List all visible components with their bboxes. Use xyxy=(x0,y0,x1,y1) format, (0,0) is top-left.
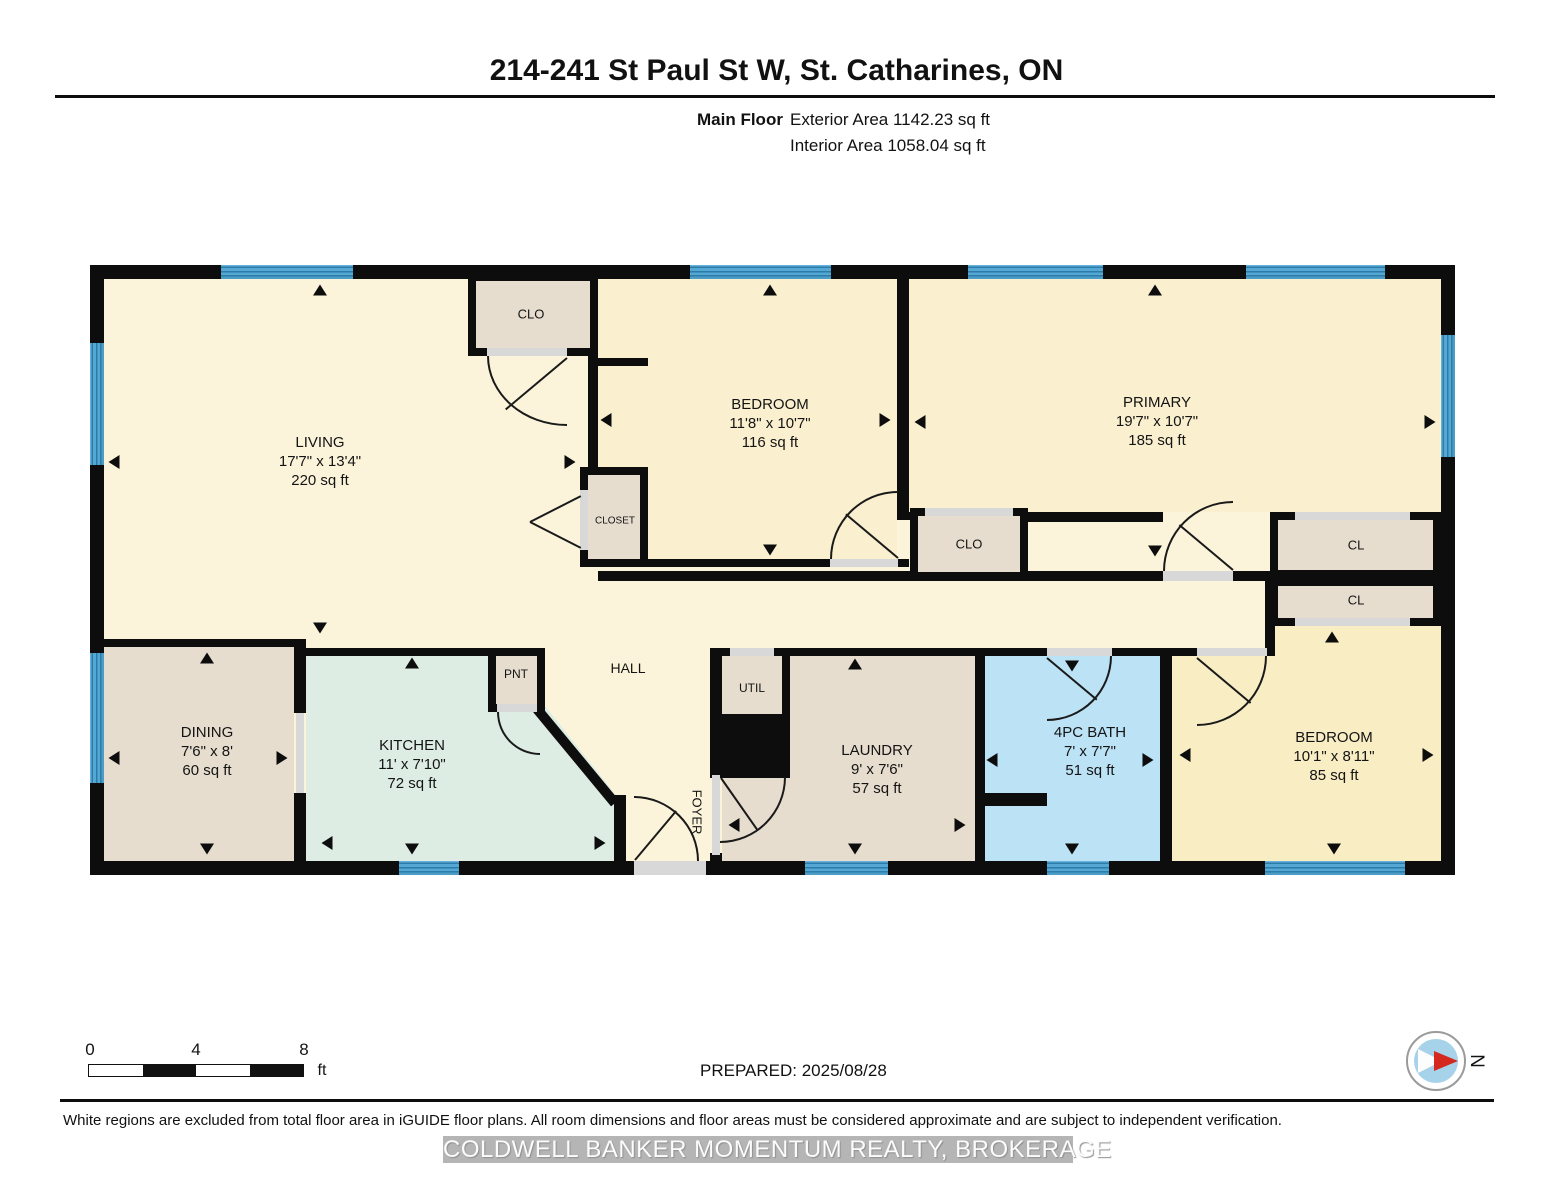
compass-north-label: N xyxy=(1465,1054,1487,1068)
entry-door-threshold xyxy=(634,861,706,875)
void-block xyxy=(714,718,790,778)
window xyxy=(690,265,831,279)
scale-unit: ft xyxy=(318,1062,327,1080)
room-label-primary: PRIMARY 19'7" x 10'7" 185 sq ft xyxy=(1116,393,1198,451)
door-threshold xyxy=(1197,648,1267,656)
scale-bar xyxy=(88,1064,304,1077)
measure-arrow-left xyxy=(322,836,333,850)
door-threshold xyxy=(1047,648,1112,656)
room-label-bedroom2: BEDROOM 10'1" x 8'11" 85 sq ft xyxy=(1293,728,1374,786)
scale-tick-4: 4 xyxy=(191,1040,200,1060)
wall xyxy=(614,795,626,861)
measure-arrow-up xyxy=(405,658,419,669)
measure-arrow-down xyxy=(1148,546,1162,557)
window xyxy=(1265,861,1405,875)
label-pnt: PNT xyxy=(504,667,528,681)
door-threshold xyxy=(830,559,898,567)
floor-plan-page: 214-241 St Paul St W, St. Catharines, ON… xyxy=(0,0,1553,1200)
measure-arrow-down xyxy=(405,844,419,855)
room-label-bedroom1: BEDROOM 11'8" x 10'7" 116 sq ft xyxy=(729,395,810,453)
room-label-bath: 4PC BATH 7' x 7'7" 51 sq ft xyxy=(1054,723,1126,781)
window xyxy=(399,861,459,875)
measure-arrow-right xyxy=(277,751,288,765)
room-name: BEDROOM xyxy=(729,395,810,414)
wall xyxy=(294,647,306,713)
room-area: 72 sq ft xyxy=(378,775,446,794)
scale-segment xyxy=(250,1065,304,1076)
scale-tick-8: 8 xyxy=(299,1040,308,1060)
room-name: KITCHEN xyxy=(378,736,446,755)
measure-arrow-up xyxy=(763,285,777,296)
measure-arrow-up xyxy=(848,659,862,670)
wall xyxy=(1112,648,1197,656)
room-name: 4PC BATH xyxy=(1054,723,1126,742)
footer-rule xyxy=(60,1099,1494,1102)
wall xyxy=(294,793,306,861)
measure-arrow-left xyxy=(1180,748,1191,762)
measure-arrow-down xyxy=(313,623,327,634)
room-dims: 17'7" x 13'4" xyxy=(279,452,361,471)
measure-arrow-down xyxy=(1065,844,1079,855)
room-label-kitchen: KITCHEN 11' x 7'10" 72 sq ft xyxy=(378,736,446,794)
label-util: UTIL xyxy=(739,681,765,695)
measure-arrow-right xyxy=(955,818,966,832)
wall xyxy=(1160,648,1172,861)
measure-arrow-left xyxy=(729,818,740,832)
room-name: DINING xyxy=(181,723,234,742)
measure-arrow-left xyxy=(915,415,926,429)
sliding-door xyxy=(1295,512,1410,520)
measure-arrow-left xyxy=(987,753,998,767)
window xyxy=(1246,265,1385,279)
label-hall: HALL xyxy=(610,660,645,676)
compass-needle-tip xyxy=(1434,1051,1458,1071)
room-dims: 19'7" x 10'7" xyxy=(1116,412,1198,431)
wall xyxy=(598,571,1163,581)
measure-arrow-down xyxy=(1327,844,1341,855)
label-clo-top: CLO xyxy=(518,307,545,322)
measure-arrow-up xyxy=(313,285,327,296)
room-area: 85 sq ft xyxy=(1293,767,1374,786)
door-threshold xyxy=(497,704,537,712)
label-foyer: FOYER xyxy=(690,790,705,835)
interior-area: Interior Area 1058.04 sq ft xyxy=(790,136,986,156)
measure-arrow-down xyxy=(763,545,777,556)
wall xyxy=(975,648,985,861)
header-rule xyxy=(55,95,1495,98)
room-area: 185 sq ft xyxy=(1116,432,1198,451)
scale-segment xyxy=(143,1065,197,1076)
room-dims: 11' x 7'10" xyxy=(378,755,446,774)
brokerage-watermark: COLDWELL BANKER MOMENTUM REALTY, BROKERA… xyxy=(443,1136,1073,1163)
measure-arrow-right xyxy=(1143,753,1154,767)
room-dims: 7'6" x 8' xyxy=(181,742,234,761)
window xyxy=(968,265,1103,279)
room-area: 51 sq ft xyxy=(1054,762,1126,781)
wall xyxy=(588,358,648,366)
window xyxy=(1047,861,1109,875)
compass-icon xyxy=(1406,1031,1466,1091)
measure-arrow-up xyxy=(200,653,214,664)
room-area: 60 sq ft xyxy=(181,762,234,781)
sliding-door xyxy=(925,508,1013,516)
scale-segment xyxy=(89,1065,143,1076)
measure-arrow-down xyxy=(1065,661,1079,672)
wall xyxy=(306,648,488,656)
window xyxy=(1441,335,1455,457)
room-dims: 11'8" x 10'7" xyxy=(729,414,810,433)
room-name: BEDROOM xyxy=(1293,728,1374,747)
wall xyxy=(898,559,909,567)
room-dims: 9' x 7'6" xyxy=(841,760,912,779)
measure-arrow-right xyxy=(595,836,606,850)
wall xyxy=(1233,571,1275,581)
window xyxy=(90,343,104,465)
room-name: LIVING xyxy=(279,433,361,452)
sliding-door xyxy=(1295,618,1410,626)
room-area: 57 sq ft xyxy=(841,780,912,799)
scale-segment xyxy=(196,1065,250,1076)
measure-arrow-up xyxy=(1148,285,1162,296)
measure-arrow-down xyxy=(200,844,214,855)
measure-arrow-left xyxy=(601,413,612,427)
page-title: 214-241 St Paul St W, St. Catharines, ON xyxy=(0,54,1553,88)
measure-arrow-left xyxy=(109,455,120,469)
door-threshold xyxy=(580,490,588,550)
room-name: LAUNDRY xyxy=(841,741,912,760)
exterior-area: Exterior Area 1142.23 sq ft xyxy=(790,110,990,130)
wall xyxy=(1028,512,1163,522)
measure-arrow-up xyxy=(1325,632,1339,643)
label-cl-upper: CL xyxy=(1348,538,1365,553)
floor-label: Main Floor xyxy=(697,110,783,130)
wall xyxy=(104,639,306,647)
disclaimer-text: White regions are excluded from total fl… xyxy=(63,1112,1282,1129)
window xyxy=(221,265,353,279)
measure-arrow-right xyxy=(1423,748,1434,762)
label-cl-lower: CL xyxy=(1348,593,1365,608)
measure-arrow-right xyxy=(1425,415,1436,429)
measure-arrow-right xyxy=(880,413,891,427)
window xyxy=(90,653,104,783)
room-area: 220 sq ft xyxy=(279,472,361,491)
window xyxy=(805,861,888,875)
room-label-dining: DINING 7'6" x 8' 60 sq ft xyxy=(181,723,234,781)
room-dims: 7' x 7'7" xyxy=(1054,742,1126,761)
room-name: PRIMARY xyxy=(1116,393,1198,412)
wall xyxy=(897,265,909,512)
prepared-date: PREPARED: 2025/08/28 xyxy=(700,1061,887,1081)
label-clo-mid: CLO xyxy=(956,537,983,552)
sliding-door xyxy=(730,648,774,656)
wall-opening xyxy=(296,713,304,793)
door-threshold xyxy=(712,775,720,855)
door-threshold xyxy=(1163,571,1233,581)
measure-arrow-left xyxy=(109,751,120,765)
measure-arrow-down xyxy=(848,844,862,855)
room-area: 116 sq ft xyxy=(729,434,810,453)
door-threshold xyxy=(487,348,567,356)
room-label-living: LIVING 17'7" x 13'4" 220 sq ft xyxy=(279,433,361,491)
scale-tick-0: 0 xyxy=(85,1040,94,1060)
room-label-laundry: LAUNDRY 9' x 7'6" 57 sq ft xyxy=(841,741,912,799)
room-dims: 10'1" x 8'11" xyxy=(1293,747,1374,766)
measure-arrow-right xyxy=(565,455,576,469)
label-closet: CLOSET xyxy=(595,516,635,527)
wall xyxy=(985,793,1047,806)
